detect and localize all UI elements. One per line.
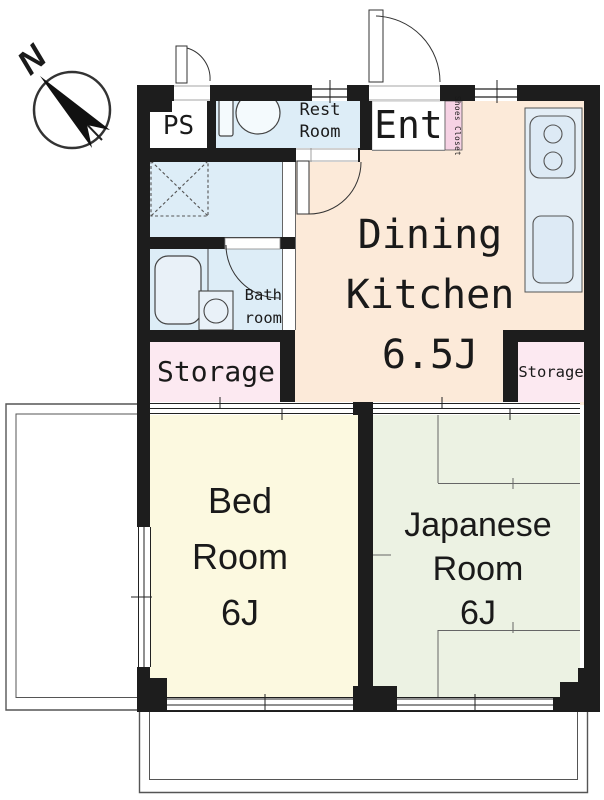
bottom-balcony-inner (150, 712, 578, 780)
left-balcony-inner (16, 414, 137, 698)
compass (34, 72, 110, 148)
bath-room-label-line1: Bath (245, 284, 282, 306)
bed-room-label-line2: Room (192, 529, 288, 585)
rest-room-label-line2: Room (300, 121, 341, 143)
bed-room-label: Bed Room 6J (140, 473, 340, 641)
ps-label: PS (150, 101, 207, 150)
japanese-room-label: Japanese Room 6J (374, 502, 582, 636)
top-window-kitchen (475, 80, 517, 103)
entrance-label: Ent (372, 99, 445, 151)
washroom-floor (150, 162, 282, 237)
japanese-room-label-line2: Room (433, 547, 524, 591)
bottom-balcony-outer (140, 712, 588, 793)
stove-icon (530, 116, 575, 178)
rest-room-label: Rest Room (288, 96, 352, 146)
dining-kitchen-label-line1: Dining (358, 205, 503, 265)
ps-door-opening (174, 85, 210, 101)
left-balcony-outer (6, 404, 137, 710)
bath-room-label: Bath room (222, 284, 282, 329)
rest-room-door-opening (296, 148, 358, 162)
bath-room-label-line2: room (245, 307, 282, 329)
storage-left-label: Storage (152, 346, 280, 396)
bed-room-label-line1: Bed (208, 473, 272, 529)
dining-kitchen-label: Dining Kitchen 6.5J (310, 205, 550, 385)
dining-kitchen-size: 6.5J (382, 325, 478, 385)
ps-door (176, 46, 210, 83)
japanese-room-label-line1: Japanese (404, 503, 551, 547)
bathtub-icon (155, 256, 201, 324)
shoes-closet-label: Shoes Closet (445, 98, 462, 154)
japanese-room-size: 6J (460, 591, 496, 635)
entrance-door (369, 10, 440, 82)
dining-kitchen-label-line2: Kitchen (346, 265, 515, 325)
storage-right-label: Storage (518, 358, 584, 386)
floor-plan: N PS Rest Room Ent Shoes Closet Dining K… (0, 0, 604, 800)
rest-room-label-line1: Rest (300, 99, 341, 121)
bed-room-size: 6J (221, 585, 259, 641)
